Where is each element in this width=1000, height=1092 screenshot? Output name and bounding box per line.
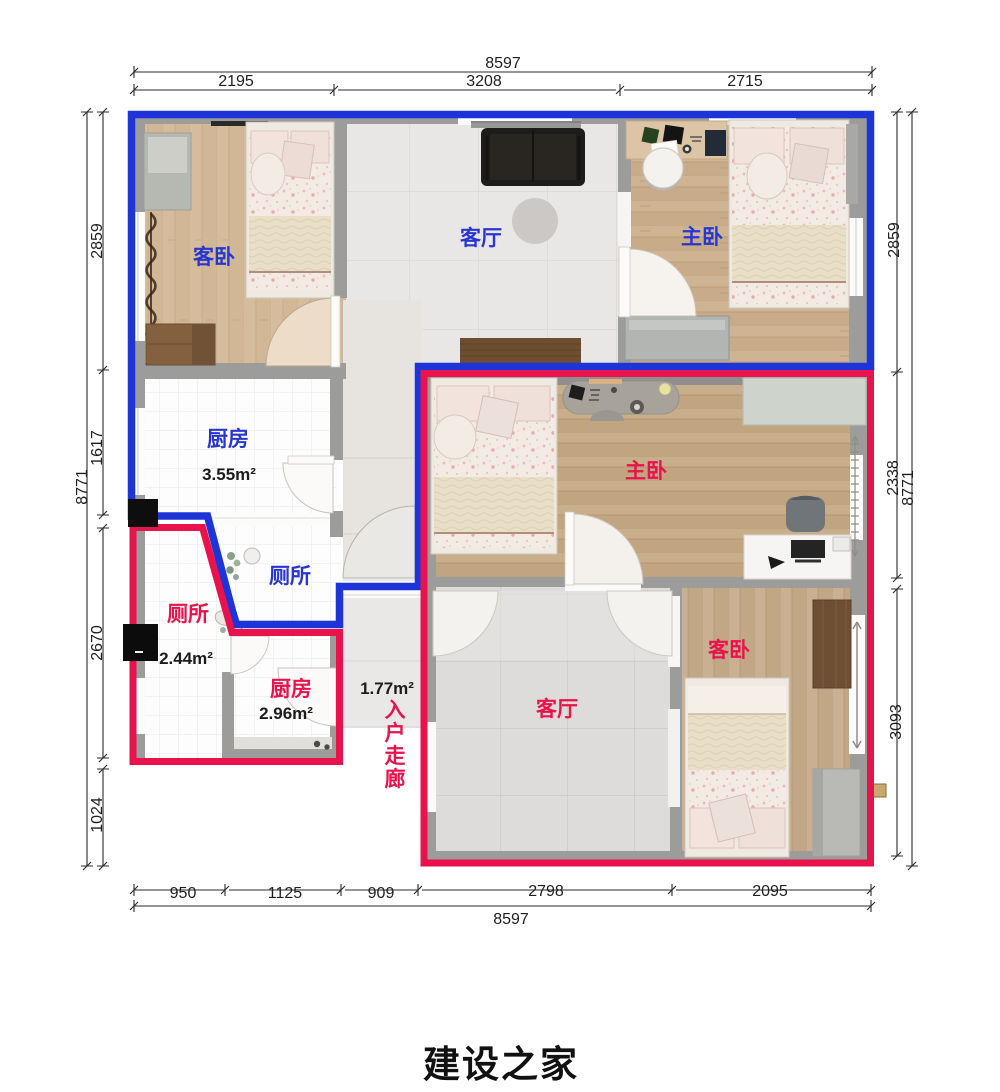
svg-text:客卧: 客卧 [708, 638, 750, 662]
svg-text:8597: 8597 [485, 55, 521, 72]
svg-text:3208: 3208 [466, 73, 502, 90]
svg-text:2.96m²: 2.96m² [259, 704, 313, 723]
svg-text:厕所: 厕所 [269, 565, 311, 588]
svg-text:8771: 8771 [900, 470, 917, 506]
svg-text:走: 走 [385, 744, 406, 768]
svg-text:2195: 2195 [218, 73, 254, 90]
svg-text:厨房: 厨房 [207, 427, 249, 451]
svg-text:3.55m²: 3.55m² [202, 465, 256, 484]
svg-text:8597: 8597 [493, 911, 529, 928]
svg-text:2670: 2670 [89, 625, 106, 661]
svg-text:1024: 1024 [89, 797, 106, 833]
svg-text:2859: 2859 [886, 222, 903, 258]
svg-text:950: 950 [170, 885, 197, 902]
svg-text:厨房: 厨房 [270, 677, 312, 701]
svg-text:客卧: 客卧 [193, 245, 235, 269]
svg-text:入: 入 [385, 699, 406, 722]
svg-text:户: 户 [385, 721, 406, 745]
svg-text:廊: 廊 [385, 767, 406, 791]
svg-text:2859: 2859 [89, 223, 106, 259]
svg-text:2715: 2715 [727, 73, 763, 90]
svg-text:客厅: 客厅 [460, 226, 502, 250]
svg-text:8771: 8771 [74, 469, 91, 505]
svg-text:3093: 3093 [888, 704, 905, 740]
svg-text:建设之家: 建设之家 [423, 1044, 579, 1085]
svg-text:1125: 1125 [268, 885, 303, 902]
svg-text:厕所: 厕所 [167, 603, 209, 626]
svg-text:909: 909 [368, 885, 395, 902]
svg-text:2.44m²: 2.44m² [159, 649, 213, 668]
svg-text:主卧: 主卧 [625, 460, 667, 483]
svg-text:主卧: 主卧 [681, 226, 723, 249]
svg-text:2798: 2798 [528, 883, 564, 900]
svg-text:1617: 1617 [89, 430, 106, 466]
svg-text:客厅: 客厅 [536, 697, 578, 721]
svg-text:2095: 2095 [752, 883, 788, 900]
svg-text:1.77m²: 1.77m² [360, 679, 414, 698]
